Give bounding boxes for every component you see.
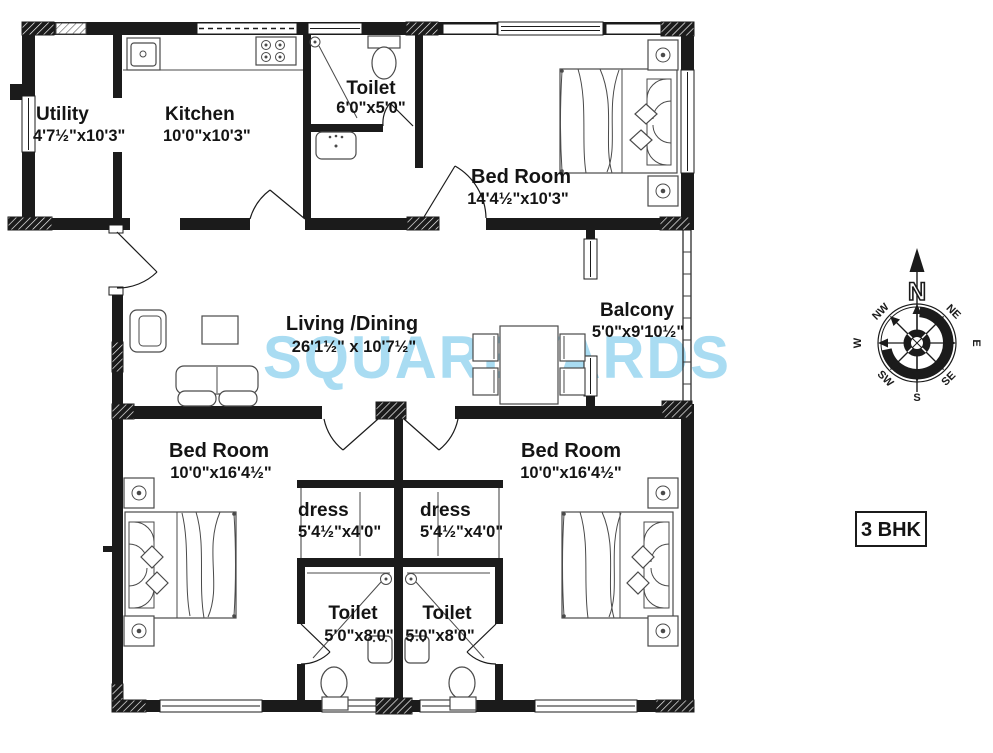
kitchen-window [197,23,297,34]
compass-east-label: E [970,339,982,346]
compass-south-label: S [913,392,920,404]
compass-west-label: W [852,337,864,348]
armchair-icon [130,310,166,352]
bedroom-top-right-window [681,70,694,173]
entrance-door [109,225,157,295]
toilet-left-label: Toilet [328,603,378,624]
stove-icon [256,37,296,65]
bedroom-top-dims: 14'4½"x10'3" [467,190,569,208]
washbasin-icon [316,132,356,159]
wc-icon [321,667,348,710]
bed-icon [560,69,677,173]
bedroom-right-dims: 10'0"x16'4½" [520,464,622,482]
bedroom-left-door [324,419,378,450]
bedroom-top-window-main [498,22,603,35]
floor-plan-drawing: SQUAREYARDS [0,0,993,753]
utility-label: Utility [36,104,89,125]
kitchen-sink-icon [127,38,160,70]
nightstand-icon [648,478,678,508]
toilet-right-label: Toilet [422,603,472,624]
living-dining-label: Living /Dining [286,313,418,335]
bedroom-top-label: Bed Room [471,166,571,188]
living-dining-dims: 26'1½" x 10'7½" [292,338,416,356]
kitchen-dims: 10'0"x10'3" [163,127,251,145]
balcony-divider-windows [584,239,597,396]
compass-ne-label: NE [943,302,962,321]
toilet-top-label: Toilet [346,78,396,99]
toilet-top-dims: 6'0"x5'0" [336,99,405,117]
nightstand-icon [124,616,154,646]
sofa-icon [176,366,258,406]
compass-nw-label: NW [870,301,892,323]
dress-left-dims: 5'4½"x4'0" [298,523,381,541]
bedroom-right-furniture [562,478,678,646]
unit-type-badge: 3 BHK [856,512,926,546]
nightstand-icon [648,40,678,70]
bedroom-right-door [404,419,458,450]
bedroom-top-furniture [560,40,678,206]
toilet-right-dims: 5'0"x8'0" [405,627,474,645]
side-table-icon [202,316,238,344]
nightstand-icon [124,478,154,508]
nightstand-icon [648,176,678,206]
kitchen-fixtures [123,37,303,70]
dress-right-dims: 5'4½"x4'0" [420,523,503,541]
bedroom-top-window-right [606,24,662,34]
kitchen-door [250,190,305,219]
wc-icon [449,667,476,710]
floor-plan-page: SQUAREYARDS [0,0,993,753]
wc-icon [368,36,400,79]
nightstand-icon [648,616,678,646]
compass-rose-icon: N NW NE W E SW SE S [852,248,982,404]
compass-sw-label: SW [875,368,896,389]
bedroom-left-furniture [124,478,236,646]
bed-icon [125,512,236,618]
utility-dims: 4'7½"x10'3" [33,127,125,145]
bed-icon [562,512,673,618]
toilet-left-dims: 5'0"x8'0" [324,627,393,645]
compass-north-label: N [908,278,926,306]
unit-type-label: 3 BHK [861,519,922,541]
bedroom-right-label: Bed Room [521,440,621,462]
bedroom-left-dims: 10'0"x16'4½" [170,464,272,482]
bedroom-top-window-left [443,24,497,34]
toilet-top-window [308,23,362,34]
balcony-dims: 5'0"x9'10½" [592,323,684,341]
balcony-label: Balcony [600,300,674,321]
dress-right-label: dress [420,500,471,521]
kitchen-label: Kitchen [165,104,235,125]
bedroom-left-label: Bed Room [169,440,269,462]
dress-left-label: dress [298,500,349,521]
